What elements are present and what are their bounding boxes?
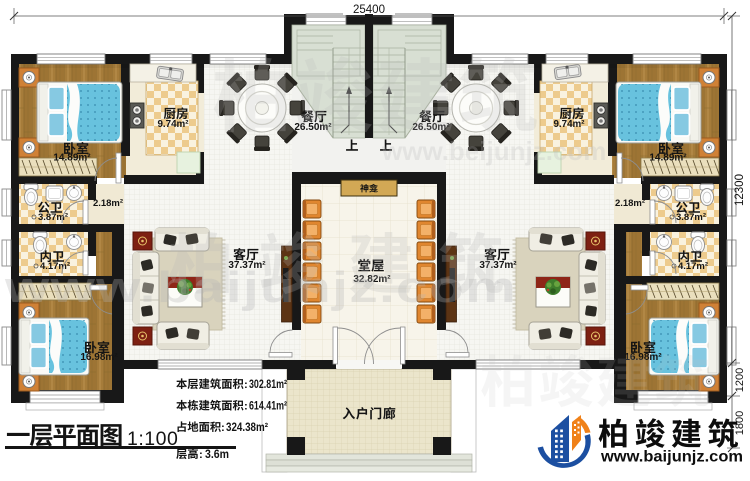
svg-text::: :	[244, 401, 248, 413]
svg-text:3.6m: 3.6m	[205, 447, 229, 461]
svg-text::: :	[244, 379, 248, 391]
svg-text:614.41m²: 614.41m²	[249, 399, 287, 413]
svg-text:2.18m²: 2.18m²	[615, 198, 645, 209]
svg-text:3.87m²: 3.87m²	[676, 212, 706, 223]
svg-text:9.74m²: 9.74m²	[157, 119, 189, 130]
svg-text:16.98m²: 16.98m²	[80, 352, 118, 363]
svg-text:2.18m²: 2.18m²	[93, 198, 123, 209]
svg-text:14.89m²: 14.89m²	[649, 153, 687, 164]
svg-text:www.baijunjz.com: www.baijunjz.com	[4, 263, 517, 312]
svg-text:4.17m²: 4.17m²	[678, 261, 708, 272]
svg-text:www.baijunjz.com: www.baijunjz.com	[600, 449, 743, 466]
svg-text:9.74m²: 9.74m²	[553, 119, 585, 130]
svg-text::: :	[221, 422, 225, 434]
svg-text:324.38m²: 324.38m²	[226, 420, 268, 434]
svg-text:www.beijunjz.com: www.beijunjz.com	[381, 136, 606, 166]
svg-text:1200: 1200	[734, 368, 746, 392]
svg-text:14.89m²: 14.89m²	[53, 153, 91, 164]
svg-text:302.81m²: 302.81m²	[249, 377, 287, 391]
svg-text:12300: 12300	[734, 174, 746, 206]
svg-text::: :	[199, 449, 203, 461]
